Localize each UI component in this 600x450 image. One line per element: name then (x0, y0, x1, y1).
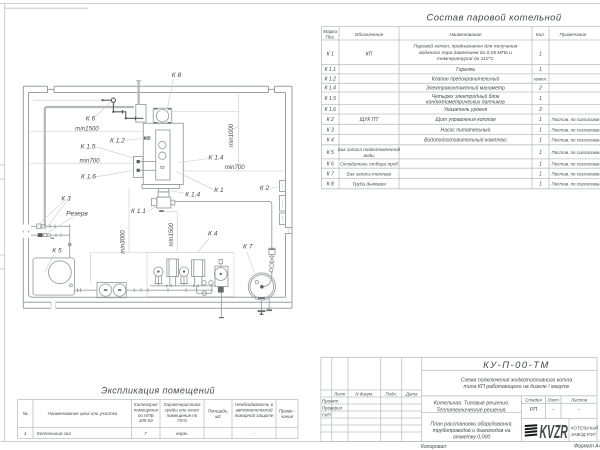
svg-text:Характеристика: Характеристика (162, 402, 201, 407)
svg-text:min1500: min1500 (168, 223, 175, 247)
svg-text:1: 1 (539, 67, 542, 73)
svg-text:К 1.1: К 1.1 (131, 208, 146, 215)
svg-text:по НПБ: по НПБ (138, 413, 154, 418)
svg-text:норм.: норм. (176, 431, 188, 436)
svg-text:Состав паровой котельной: Состав паровой котельной (426, 12, 561, 23)
svg-text:кондуктометрических датчиков: кондуктометрических датчиков (426, 100, 505, 106)
svg-text:трубопроводов и дымоходов на: трубопроводов и дымоходов на (433, 428, 511, 434)
svg-text:Щит управления котлом: Щит управления котлом (435, 117, 496, 123)
svg-text:К 2: К 2 (260, 185, 270, 192)
svg-text:компл.: компл. (534, 77, 547, 82)
svg-text:2: 2 (538, 86, 542, 92)
svg-text:среды или класс: среды или класс (165, 408, 200, 413)
svg-text:ЩУК ПТ: ЩУК ПТ (360, 117, 380, 123)
svg-text:1: 1 (539, 96, 542, 102)
svg-text:пожарной защите: пожарной защите (235, 412, 274, 418)
svg-text:Проект.: Проект. (322, 399, 339, 404)
svg-text:Постав. по согласован.: Постав. по согласован. (552, 162, 600, 167)
svg-text:Экспликация помещений: Экспликация помещений (101, 385, 215, 395)
svg-text:Постав. по согласован.: Постав. по согласован. (552, 171, 600, 176)
svg-text:Паровой котел, предназначен дл: Паровой котел, предназначен для получени… (414, 43, 518, 50)
svg-text:К 3: К 3 (327, 127, 334, 133)
svg-text:Резерв: Резерв (66, 211, 88, 218)
svg-text:К 1.2: К 1.2 (110, 138, 125, 145)
svg-text:Необходимость в: Необходимость в (235, 402, 274, 407)
svg-text:м2: м2 (215, 414, 221, 419)
svg-text:Проверил: Проверил (322, 406, 343, 411)
svg-text:Бак запаса подготовленной: Бак запаса подготовленной (338, 146, 401, 152)
svg-text:min1500: min1500 (75, 125, 99, 132)
svg-text:К 8: К 8 (327, 182, 334, 188)
svg-text:ЗАВОД РЭП: ЗАВОД РЭП (571, 432, 597, 437)
svg-text:Подп.: Подп. (385, 392, 397, 397)
svg-text:Клапан предохранительный: Клапан предохранительный (432, 76, 500, 83)
svg-text:чание: чание (281, 414, 294, 419)
svg-text:К 1.4: К 1.4 (209, 155, 224, 162)
svg-text:Водоподготовительный комплекс: Водоподготовительный комплекс (424, 137, 507, 144)
svg-text:Горелка: Горелка (456, 67, 475, 73)
svg-text:2: 2 (538, 107, 542, 113)
svg-text:К 1.4: К 1.4 (185, 192, 200, 199)
svg-text:помещения по: помещения по (167, 413, 198, 418)
svg-text:КП: КП (366, 52, 373, 58)
svg-text:температурой до 110°С: температурой до 110°С (437, 55, 494, 62)
svg-text:помещения: помещения (134, 408, 159, 413)
svg-text:К 1.2: К 1.2 (324, 77, 336, 83)
svg-text:Котельная. Типовые решения.: Котельная. Типовые решения. (434, 401, 509, 407)
svg-text:1: 1 (539, 150, 542, 156)
svg-text:отметку 0,000: отметку 0,000 (453, 435, 490, 441)
svg-text:К 7: К 7 (327, 171, 334, 177)
svg-text:Теплотехнические решения.: Теплотехнические решения. (436, 408, 507, 414)
svg-text:ГИП: ГИП (322, 413, 332, 418)
svg-text:К 3: К 3 (61, 195, 71, 202)
svg-text:Насос питательный: Насос питательный (441, 126, 491, 133)
svg-text:1: 1 (539, 162, 542, 168)
svg-text:К 5: К 5 (52, 248, 62, 255)
svg-text:Формат А4: Формат А4 (574, 444, 600, 450)
svg-text:1: 1 (539, 127, 542, 133)
svg-text:Марка: Марка (323, 29, 337, 34)
svg-text:План расстановки оборудования,: План расстановки оборудования, (430, 422, 512, 428)
svg-text:N докум.: N докум. (355, 392, 373, 397)
svg-text:1: 1 (539, 171, 542, 177)
svg-text:К 2: К 2 (327, 117, 334, 123)
svg-text:Охладитель отбора проб: Охладитель отбора проб (340, 162, 398, 167)
svg-text:К 1.5: К 1.5 (81, 144, 96, 151)
svg-text:Категория: Категория (134, 402, 158, 407)
svg-text:Приме -: Приме - (279, 409, 296, 414)
svg-text:Копировал:: Копировал: (421, 444, 448, 450)
svg-text:1: 1 (539, 117, 542, 123)
svg-text:Электроконтактный манометр: Электроконтактный манометр (426, 85, 505, 92)
svg-text:-: - (552, 407, 554, 413)
svg-text:1: 1 (539, 138, 542, 144)
svg-text:Постав. по согласован.: Постав. по согласован. (552, 117, 600, 122)
svg-text:105-03: 105-03 (139, 418, 154, 423)
svg-text:Кол.: Кол. (536, 32, 545, 37)
svg-text:Дата: Дата (405, 392, 418, 397)
svg-text:min700: min700 (80, 158, 101, 165)
svg-text:К 1.6: К 1.6 (81, 174, 96, 181)
svg-text:1: 1 (24, 431, 27, 436)
svg-text:Площадь,: Площадь, (208, 409, 229, 414)
svg-text:min700: min700 (225, 164, 246, 171)
svg-text:Поз.: Поз. (325, 35, 334, 40)
svg-text:ПУЭ: ПУЭ (177, 418, 186, 423)
svg-text:1: 1 (539, 52, 542, 58)
svg-text:Обозначение: Обозначение (355, 32, 384, 37)
svg-text:автоматической: автоматической (235, 407, 272, 413)
svg-text:К 1: К 1 (327, 52, 334, 58)
svg-text:К 1.5: К 1.5 (324, 96, 336, 102)
svg-text:К 1.6: К 1.6 (324, 107, 336, 113)
svg-text:К 6: К 6 (327, 162, 334, 168)
svg-text:KVZR: KVZR (540, 421, 569, 442)
svg-text:Листов: Листов (570, 398, 588, 403)
svg-text:№: № (23, 411, 28, 416)
svg-text:К 1.4: К 1.4 (324, 86, 336, 92)
svg-text:К 8: К 8 (172, 72, 182, 79)
svg-text:1: 1 (539, 182, 542, 188)
svg-text:КУ-П-00-ТМ: КУ-П-00-ТМ (483, 359, 550, 370)
svg-text:К 1: К 1 (214, 187, 224, 194)
svg-text:Бак запаса топлива: Бак запаса топлива (347, 171, 392, 176)
svg-text:Постав. по согласован.: Постав. по согласован. (552, 138, 600, 143)
svg-text:Указатель уровня: Указатель уровня (444, 107, 488, 113)
svg-text:min1000: min1000 (228, 123, 235, 147)
svg-text:Лист: Лист (547, 398, 560, 403)
svg-text:воды: воды (364, 153, 376, 158)
svg-text:Труба дымовая: Труба дымовая (352, 182, 386, 187)
svg-text:Лист: Лист (333, 392, 346, 397)
svg-text:типа КП работающего на дизеле: типа КП работающего на дизеле / мазуте (464, 384, 570, 390)
svg-text:-: - (578, 407, 580, 413)
svg-text:Котельный зал: Котельный зал (37, 430, 71, 436)
svg-text:Наименование цеха или участка: Наименование цеха или участка (48, 411, 118, 416)
svg-text:К 6: К 6 (86, 116, 96, 123)
svg-text:водяного пара давлением до 0,: водяного пара давлением до 0,05 МПа и (419, 50, 512, 56)
svg-text:КОТЕЛЬНЫЙ: КОТЕЛЬНЫЙ (571, 426, 599, 431)
svg-text:Постав. по согласован.: Постав. по согласован. (552, 150, 600, 155)
svg-text:Г: Г (145, 431, 148, 436)
svg-text:Схема подключения жидкотопливн: Схема подключения жидкотопливного котла (461, 378, 572, 384)
svg-text:Постав. по согласован.: Постав. по согласован. (552, 182, 600, 187)
svg-text:К 4: К 4 (208, 231, 218, 238)
svg-text:Постав. по согласован.: Постав. по согласован. (552, 127, 600, 132)
svg-text:РП: РП (530, 407, 537, 413)
svg-text:Наименование: Наименование (449, 32, 482, 37)
svg-text:Примечание: Примечание (560, 32, 587, 37)
svg-text:Стадия: Стадия (525, 398, 542, 403)
svg-text:К 1.1: К 1.1 (324, 67, 336, 73)
svg-text:К 4: К 4 (327, 138, 334, 144)
svg-text:min3000: min3000 (119, 230, 126, 254)
svg-text:К 5: К 5 (327, 150, 334, 156)
svg-text:К 7: К 7 (243, 244, 253, 251)
